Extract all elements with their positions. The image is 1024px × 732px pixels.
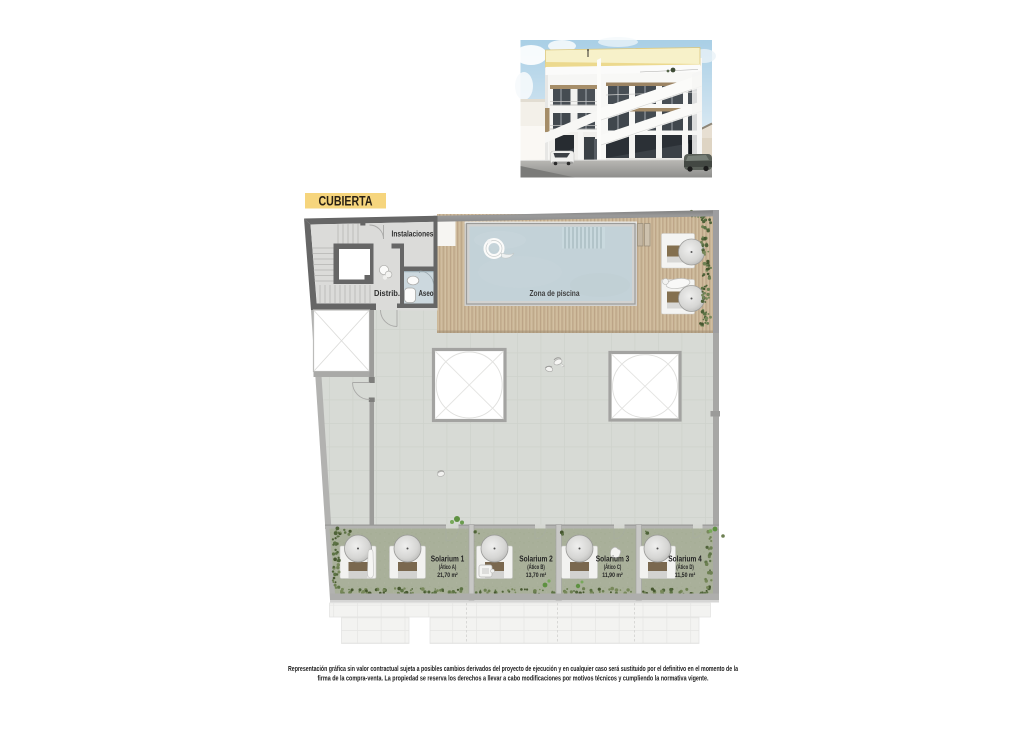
svg-text:13,70 m²: 13,70 m² [526, 572, 547, 579]
svg-text:Aseo: Aseo [419, 289, 434, 298]
svg-text:Solarium 1: Solarium 1 [431, 555, 465, 564]
svg-text:11,90 m²: 11,90 m² [602, 572, 623, 579]
svg-text:Solarium 3: Solarium 3 [596, 555, 630, 564]
svg-text:Zona de piscina: Zona de piscina [530, 289, 580, 298]
svg-text:(Ático D): (Ático D) [676, 564, 694, 571]
svg-text:firma de la compra-venta. La p: firma de la compra-venta. La propiedad s… [318, 676, 709, 683]
svg-text:(Ático C): (Ático C) [604, 564, 622, 571]
svg-text:Distrib.: Distrib. [374, 289, 400, 298]
svg-text:Solarium 4: Solarium 4 [668, 555, 702, 564]
svg-text:21,70 m²: 21,70 m² [437, 572, 458, 579]
svg-text:Representación gráfica sin val: Representación gráfica sin valor contrac… [288, 666, 738, 673]
svg-text:(Ático B): (Ático B) [527, 564, 545, 571]
svg-text:CUBIERTA: CUBIERTA [319, 194, 373, 210]
svg-text:Instalaciones: Instalaciones [392, 230, 434, 239]
svg-text:Solarium 2: Solarium 2 [519, 555, 553, 564]
svg-text:(Ático A): (Ático A) [439, 564, 457, 571]
svg-text:11,50 m²: 11,50 m² [675, 572, 696, 579]
